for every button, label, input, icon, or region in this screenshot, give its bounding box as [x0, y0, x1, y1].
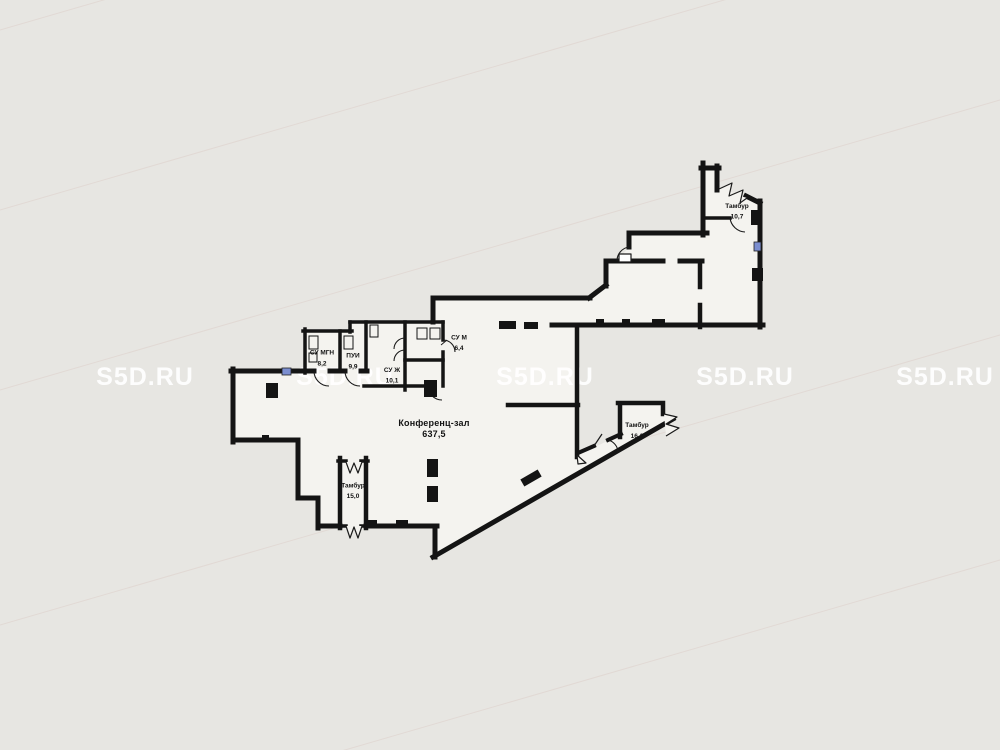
floor-plan-canvas: S5D.RU S5D.RU S5D.RU S5D.RU S5D.RU — [0, 0, 1000, 750]
screenshot-root: S5D.RU S5D.RU S5D.RU S5D.RU S5D.RU — [0, 0, 1000, 750]
room-area-su-zh: 10,1 — [386, 378, 399, 385]
room-area-conference-hall: 637,5 — [422, 429, 446, 439]
column — [427, 486, 438, 502]
room-label-tambur-top: Тамбур — [725, 202, 749, 210]
wall-tick — [262, 435, 269, 440]
room-label-su-mgn: СУ МГН — [310, 350, 335, 357]
wall-tick — [652, 319, 665, 325]
column — [266, 383, 278, 398]
room-area-tambur-east: 16,2 — [631, 433, 644, 440]
room-label-conference-hall: Конференц-зал — [398, 418, 469, 428]
wall-tick — [396, 520, 408, 526]
watermark: S5D.RU — [696, 363, 794, 391]
wall-tick — [596, 319, 604, 325]
room-area-su-m: 6,4 — [454, 345, 463, 352]
wall-dash — [499, 321, 516, 329]
room-label-su-zh: СУ Ж — [384, 367, 400, 374]
column — [751, 210, 761, 225]
room-label-pui: ПУИ — [346, 353, 360, 360]
column — [424, 380, 437, 397]
fixture — [430, 328, 440, 339]
fixture — [370, 325, 378, 337]
room-area-tambur-south: 15,0 — [347, 493, 360, 500]
window-marker — [754, 242, 761, 251]
room-area-su-mgn: 8,2 — [317, 361, 326, 368]
watermark: S5D.RU — [896, 363, 994, 391]
fixture — [309, 336, 318, 349]
entrance-door-leaf — [619, 254, 631, 262]
wall-tick — [622, 319, 630, 325]
wall-tick — [368, 520, 377, 526]
room-label-tambur-south: Тамбур — [341, 482, 365, 490]
window-marker — [282, 368, 291, 375]
watermark: S5D.RU — [96, 363, 194, 391]
fixture — [417, 328, 427, 339]
column — [752, 268, 763, 281]
fixture — [344, 336, 353, 349]
room-area-pui: 9,9 — [348, 364, 357, 371]
wall-dash — [524, 322, 538, 329]
room-label-tambur-east: Тамбур — [625, 421, 649, 429]
room-label-su-m: СУ М — [451, 335, 467, 342]
column — [427, 459, 438, 477]
room-area-tambur-top: 10,7 — [731, 214, 744, 221]
